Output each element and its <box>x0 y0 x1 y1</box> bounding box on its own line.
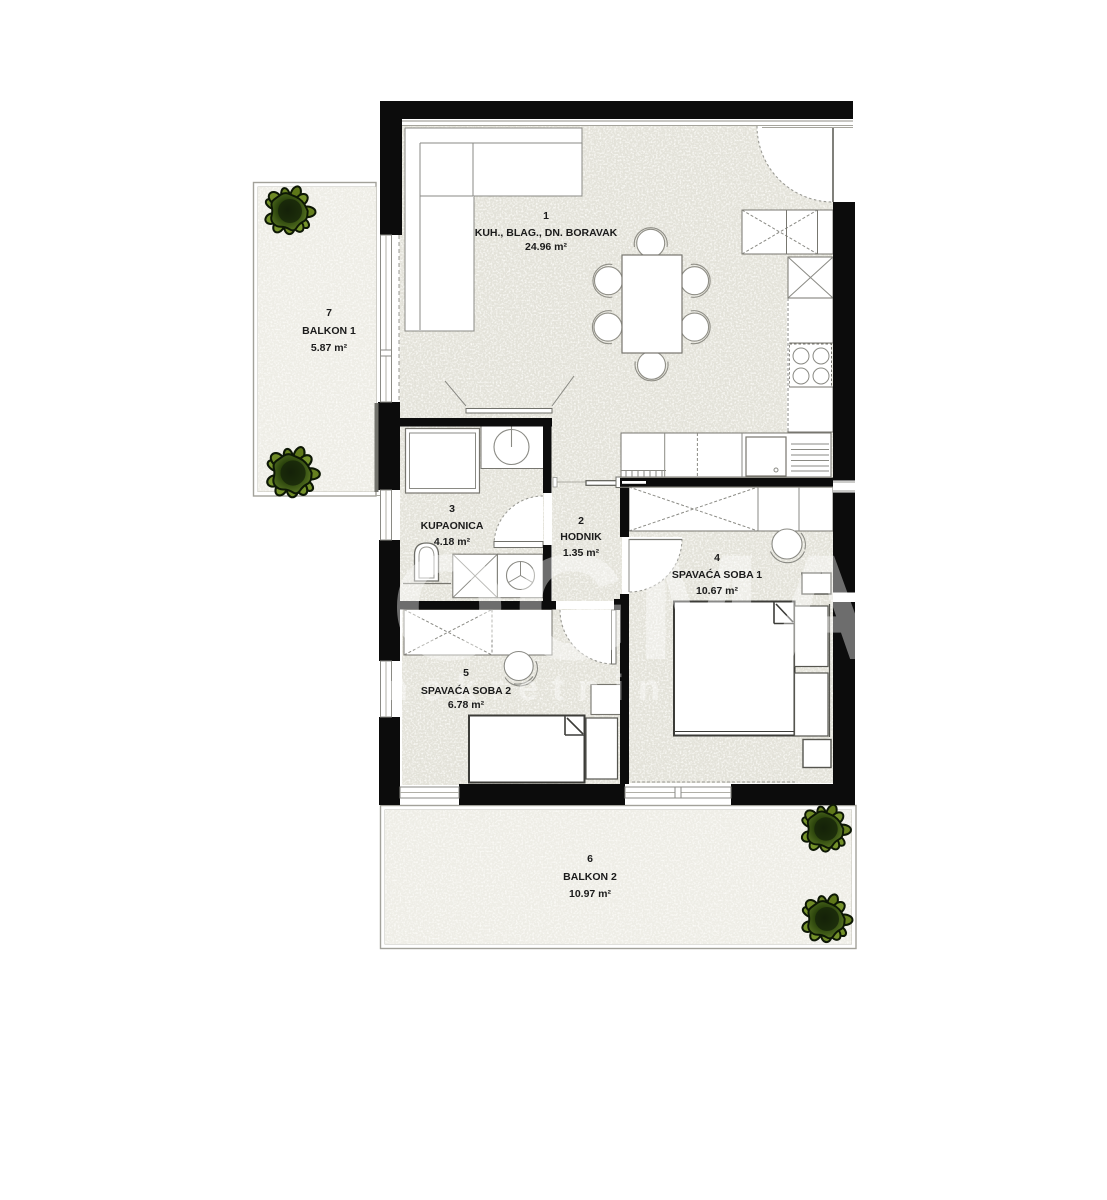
svg-text:5: 5 <box>463 667 469 679</box>
svg-text:BALKON 2: BALKON 2 <box>563 871 617 883</box>
svg-text:10.97 m²: 10.97 m² <box>569 888 612 900</box>
svg-text:BALKON 1: BALKON 1 <box>302 325 356 337</box>
svg-text:7: 7 <box>326 307 332 319</box>
svg-text:3: 3 <box>449 503 455 515</box>
svg-text:1: 1 <box>543 210 549 222</box>
svg-text:1.35 m²: 1.35 m² <box>563 547 600 559</box>
svg-text:4.18 m²: 4.18 m² <box>434 536 471 548</box>
svg-text:SPAVAĆA SOBA 2: SPAVAĆA SOBA 2 <box>421 684 511 697</box>
svg-text:2: 2 <box>578 515 584 527</box>
svg-text:KUH., BLAG., DN. BORAVAK: KUH., BLAG., DN. BORAVAK <box>475 227 618 239</box>
svg-text:4: 4 <box>714 552 720 564</box>
svg-text:HODNIK: HODNIK <box>560 531 602 543</box>
svg-text:6.78 m²: 6.78 m² <box>448 699 485 711</box>
svg-text:10.67 m²: 10.67 m² <box>696 585 739 597</box>
svg-text:24.96 m²: 24.96 m² <box>525 241 568 253</box>
svg-text:KUPAONICA: KUPAONICA <box>421 520 484 532</box>
svg-text:SPAVAĆA SOBA 1: SPAVAĆA SOBA 1 <box>672 568 762 581</box>
svg-text:5.87 m²: 5.87 m² <box>311 342 348 354</box>
svg-text:6: 6 <box>587 853 593 865</box>
